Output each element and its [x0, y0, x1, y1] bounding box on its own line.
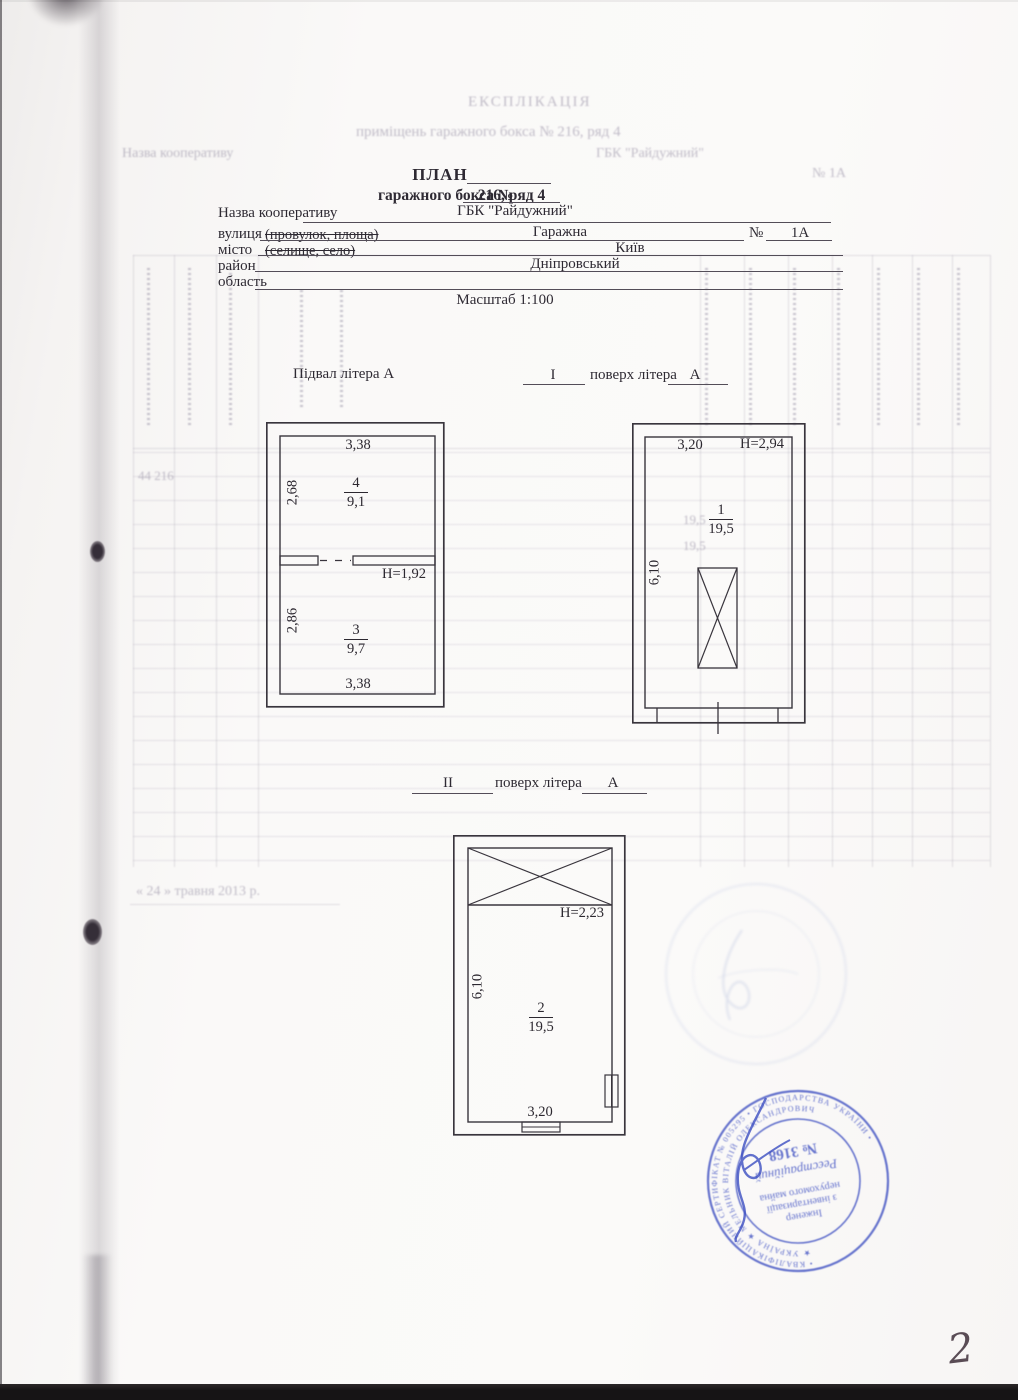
field-hint-street: (провулок, площа) [265, 227, 379, 244]
floor2-dim-left: 6,10 [470, 964, 487, 1010]
basement-height-label: Н=1,92 [382, 566, 426, 583]
scanned-document-page: ЕКСПЛІКАЦІЯ приміщень гаражного бокса № … [0, 0, 1018, 1400]
field-label-cooperative: Назва кооперативу [218, 205, 337, 222]
floor1-room: 1 19,5 [689, 502, 753, 537]
bleed-subheading: приміщень гаражного бокса № 216, ряд 4 [356, 124, 621, 141]
basement-dim-left-top: 2,68 [285, 470, 302, 516]
page-title: ПЛАН [400, 165, 480, 185]
bleed-table-numbers: 44 216 [138, 468, 174, 484]
floor2-numeral: ІІ [432, 775, 464, 792]
bleed-coop-name: ГБК "Райдужний" [596, 146, 704, 162]
scan-edge-bottom [0, 1384, 1018, 1400]
basement-section-label: Підвал літера А [293, 366, 394, 383]
scale-label: Масштаб 1:100 [445, 292, 565, 309]
fold-shadow-bottom [82, 1255, 112, 1387]
scan-edge-left [0, 0, 2, 1400]
floor1-section-label: поверх літера [590, 367, 677, 384]
signature [690, 1088, 810, 1258]
room-number: 1 [709, 502, 732, 520]
faint-round-stamp [658, 878, 854, 1074]
floor1-height-label: Н=2,94 [740, 436, 784, 453]
basement-dim-left-bottom: 2,86 [285, 598, 302, 644]
bleed-heading: ЕКСПЛІКАЦІЯ [468, 94, 591, 111]
bleed-left-label: Назва кооперативу [122, 146, 233, 162]
handwritten-page-number: 2 [945, 1325, 976, 1374]
punch-hole-bottom [83, 919, 102, 945]
scan-edge-top [0, 0, 1018, 2]
basement-dim-top: 3,38 [330, 437, 386, 454]
room-area: 9,7 [324, 640, 388, 657]
room-area: 9,1 [324, 493, 388, 510]
field-value-street: Гаражна [500, 224, 620, 241]
bleed-table-line [133, 448, 990, 449]
bleed-date-line: « 24 » травня 2013 р. [136, 884, 260, 900]
field-value-cooperative: ГБК "Райдужний" [420, 203, 610, 220]
room-number: 2 [529, 1000, 552, 1018]
basement-plan-drawing [266, 422, 445, 708]
bleed-table-rows [133, 452, 990, 868]
punch-hole-top [90, 541, 105, 562]
field-hint-city: (селище, село) [265, 243, 355, 260]
page-fold-shadow [78, 0, 120, 1400]
bleed-street-no: № 1А [812, 166, 846, 182]
floor1-numeral: І [538, 367, 568, 384]
room-area: 19,5 [689, 520, 753, 537]
floor2-letter: А [598, 775, 628, 792]
floor2-height-label: Н=2,23 [560, 905, 604, 922]
basement-dim-bottom: 3,38 [330, 676, 386, 693]
field-label-number: № [749, 225, 763, 242]
floor2-room: 2 19,5 [509, 1000, 573, 1035]
basement-room-top: 4 9,1 [324, 475, 388, 510]
field-label-district: район [218, 258, 256, 275]
floor1-dim-top: 3,20 [662, 437, 718, 454]
floor2-dim-bottom: 3,20 [512, 1104, 568, 1121]
field-label-street: вулиця [218, 226, 262, 243]
title-blank-overline [467, 183, 551, 184]
fold-shadow-top [28, 0, 104, 26]
room-area: 19,5 [509, 1018, 573, 1035]
field-label-city: місто [218, 242, 252, 259]
room-number: 4 [344, 475, 367, 493]
floor1-letter: А [679, 367, 711, 384]
floor2-section-label: поверх літера [495, 775, 582, 792]
floor1-dim-left: 6,10 [647, 550, 664, 596]
basement-room-bottom: 3 9,7 [324, 622, 388, 657]
room-number: 3 [344, 622, 367, 640]
